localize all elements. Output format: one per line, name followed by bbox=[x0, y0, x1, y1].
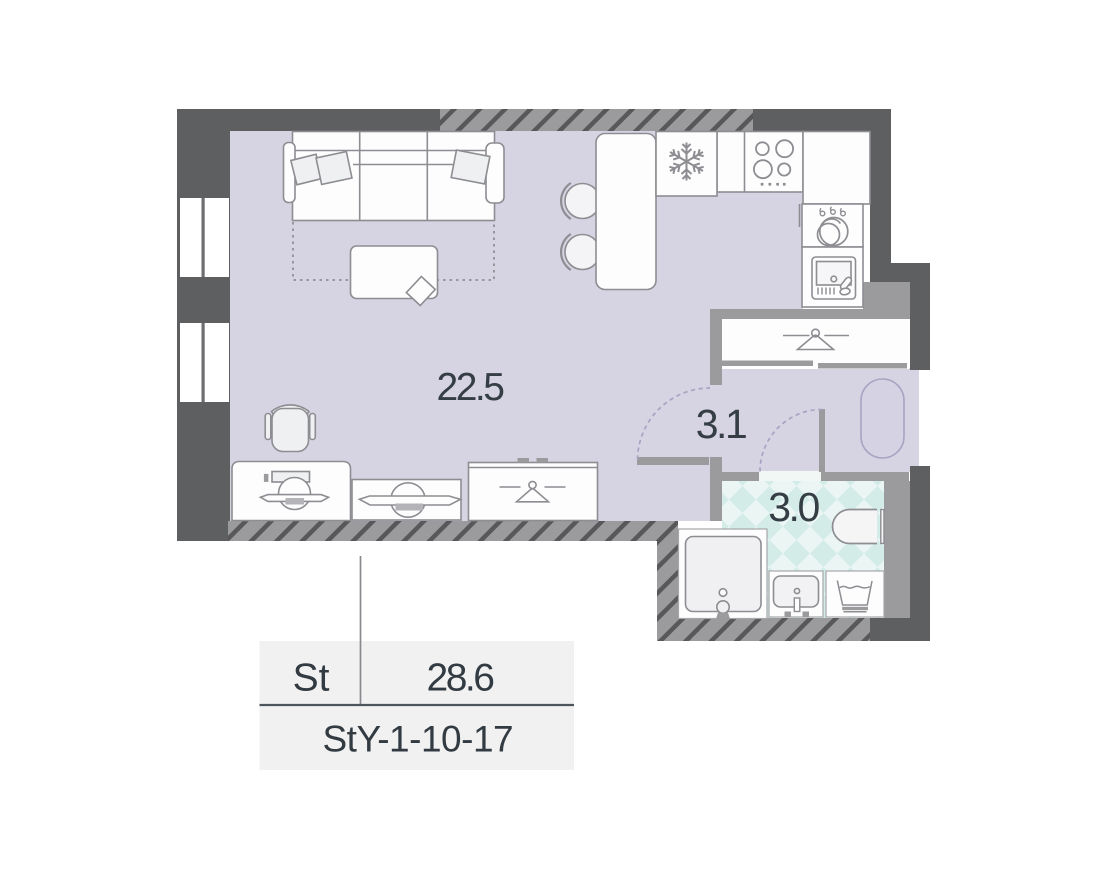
svg-text:3.0: 3.0 bbox=[768, 484, 819, 530]
svg-text:28.6: 28.6 bbox=[427, 657, 494, 700]
svg-text:StY-1-10-17: StY-1-10-17 bbox=[323, 719, 514, 760]
svg-text:3.1: 3.1 bbox=[696, 401, 746, 447]
svg-text:22.5: 22.5 bbox=[437, 366, 505, 409]
svg-text:St: St bbox=[293, 657, 330, 700]
